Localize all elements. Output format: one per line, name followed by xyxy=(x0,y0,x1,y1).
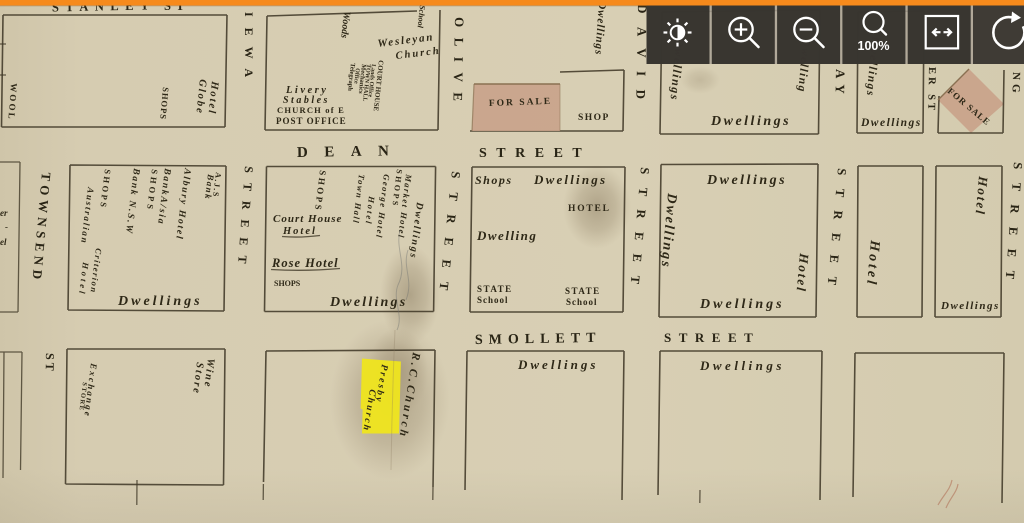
svg-text:AY: AY xyxy=(832,69,848,101)
svg-text:Dwellings: Dwellings xyxy=(860,117,922,129)
svg-text:School: School xyxy=(477,295,509,305)
svg-text:CHURCH of E: CHURCH of E xyxy=(277,105,345,115)
svg-text:er: er xyxy=(0,208,8,218)
svg-text:Dwellings: Dwellings xyxy=(117,294,203,309)
svg-text:IEWA: IEWA xyxy=(242,12,256,88)
svg-text:ER ST: ER ST xyxy=(925,67,937,113)
svg-text:Dwellings: Dwellings xyxy=(699,297,785,312)
svg-text:el: el xyxy=(0,237,7,247)
svg-text:POST OFFICE: POST OFFICE xyxy=(276,116,347,126)
svg-text:Dwellings: Dwellings xyxy=(517,357,598,372)
svg-text:STREET: STREET xyxy=(479,146,591,161)
svg-text:Dwellings: Dwellings xyxy=(329,295,407,310)
svg-text:Dwellings: Dwellings xyxy=(699,358,785,373)
svg-text:-: - xyxy=(5,222,8,232)
svg-text:STREET: STREET xyxy=(664,330,760,345)
svg-text:Court House: Court House xyxy=(273,213,342,225)
svg-text:Dwellings: Dwellings xyxy=(533,172,607,187)
svg-text:Dwellings: Dwellings xyxy=(940,300,1000,312)
svg-text:Shops: Shops xyxy=(475,173,513,187)
svg-text:ST: ST xyxy=(43,353,57,374)
svg-text:STATE: STATE xyxy=(477,284,513,294)
svg-text:Rose Hotel: Rose Hotel xyxy=(271,256,339,270)
svg-text:STATE: STATE xyxy=(565,286,601,296)
svg-text:DEAN: DEAN xyxy=(297,143,406,161)
svg-text:100%: 100% xyxy=(858,39,890,53)
svg-text:NG: NG xyxy=(1010,72,1022,97)
svg-text:OLIVE: OLIVE xyxy=(450,17,467,112)
svg-text:SHOPS: SHOPS xyxy=(274,279,301,288)
svg-text:School: School xyxy=(566,297,598,307)
svg-text:Dwellings: Dwellings xyxy=(706,173,787,188)
svg-text:Dwelling: Dwelling xyxy=(476,228,537,243)
svg-text:SHOP: SHOP xyxy=(578,113,610,123)
svg-text:Dwellings: Dwellings xyxy=(710,114,791,129)
svg-text:SMOLLETT: SMOLLETT xyxy=(475,331,602,348)
svg-text:HOTEL: HOTEL xyxy=(568,204,611,214)
svg-text:Hotel: Hotel xyxy=(282,226,317,237)
